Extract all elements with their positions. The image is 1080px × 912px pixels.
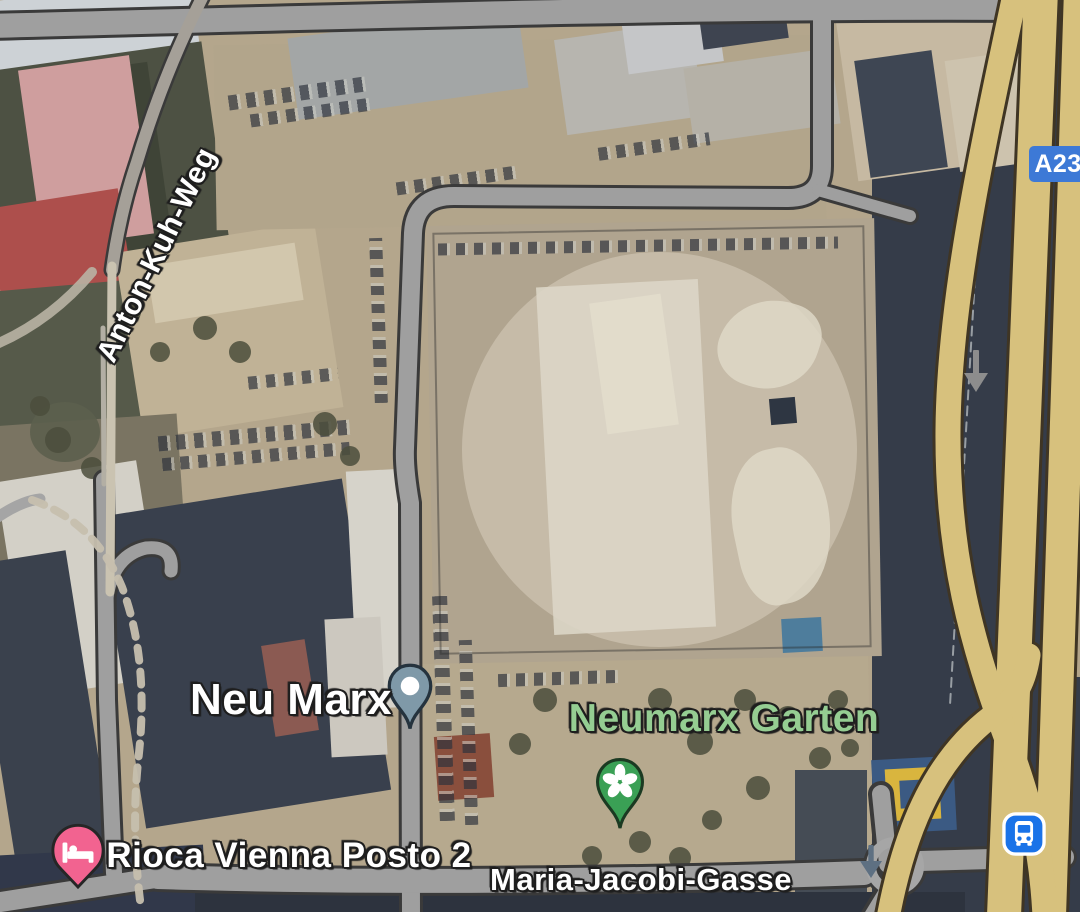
- district-label[interactable]: Neu Marx: [190, 675, 392, 725]
- bus-icon: [1015, 821, 1033, 846]
- bus-station[interactable]: [1002, 812, 1046, 856]
- one-way-arrow-icon: [964, 350, 988, 392]
- park-label[interactable]: Neumarx Garten: [569, 697, 879, 741]
- map-canvas[interactable]: Neu Marx Neumarx Garten Rioca Vienna Pos…: [0, 0, 1080, 912]
- highway-badge-text: A23: [1034, 150, 1080, 179]
- highway-badge-a23: A23: [1029, 146, 1080, 182]
- dot-icon: [401, 677, 420, 696]
- roads-overlay: [0, 0, 1080, 912]
- road-label-maria-jacobi-gasse: Maria-Jacobi-Gasse: [490, 862, 792, 898]
- district-pin[interactable]: [386, 663, 434, 733]
- hotel-pin[interactable]: [49, 818, 107, 896]
- hotel-label[interactable]: Rioca Vienna Posto 2: [106, 836, 471, 876]
- park-pin[interactable]: [594, 756, 646, 834]
